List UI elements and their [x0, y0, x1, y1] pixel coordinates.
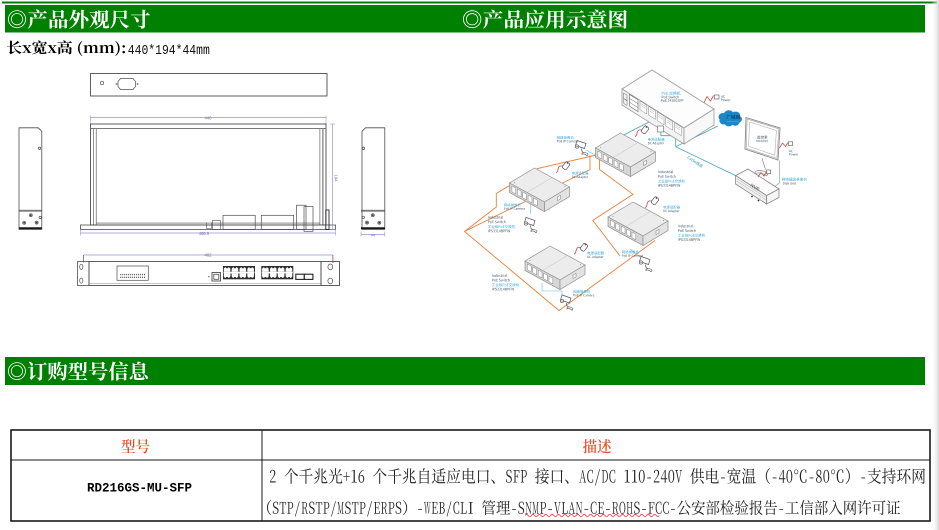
svg-text:486.0: 486.0	[199, 231, 210, 236]
svg-text:RD216GS-MU-SFP: RD216GS-MU-SFP	[87, 482, 192, 496]
svg-text:482: 482	[205, 253, 213, 258]
svg-text:44: 44	[371, 232, 376, 237]
svg-text:440: 440	[205, 115, 213, 120]
svg-text:194: 194	[334, 175, 339, 183]
svg-text:440*194*44mm: 440*194*44mm	[128, 43, 210, 59]
